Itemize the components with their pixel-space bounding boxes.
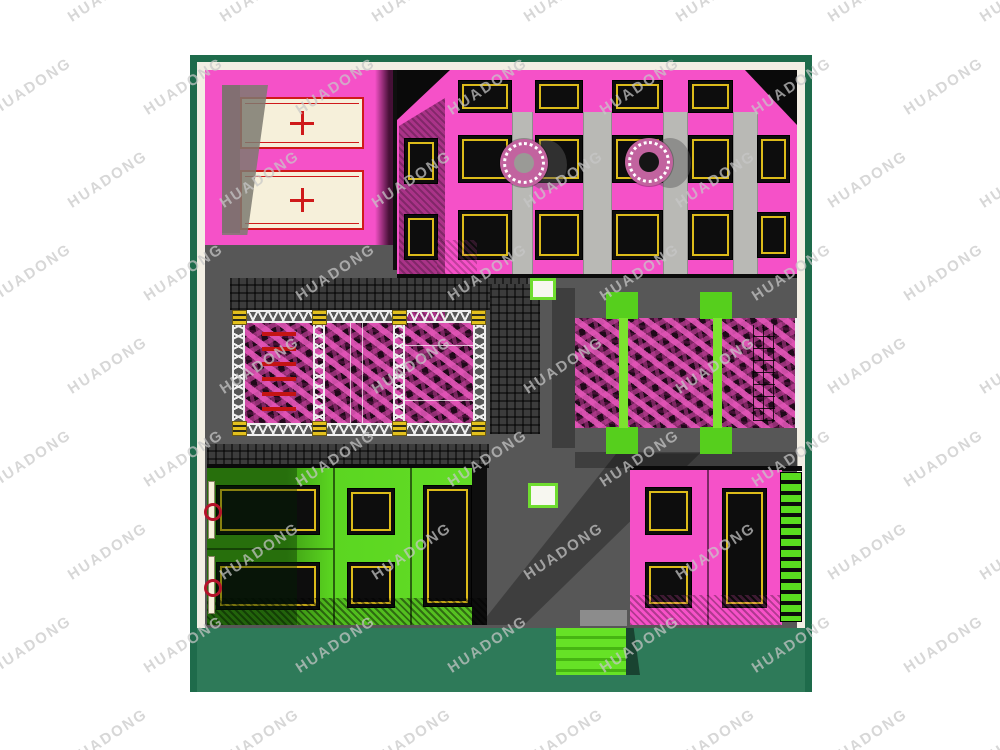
hazard-pad — [392, 421, 407, 436]
trampoline-park-render: HUADONGHUADONGHUADONGHUADONGHUADONGHUADO… — [0, 0, 1000, 750]
trampoline-bed — [404, 138, 438, 184]
zone-edge-shadow — [375, 70, 395, 245]
watermark-text: HUADONG — [673, 705, 759, 750]
zone-left-shade — [207, 468, 297, 625]
trampoline-bed — [535, 80, 583, 113]
donut-ring — [500, 139, 548, 187]
truss-edge-right — [473, 310, 486, 436]
pit-edge-pad — [795, 318, 799, 428]
truss-edge-left — [232, 310, 245, 436]
trampoline-bed — [612, 210, 663, 260]
column-pad — [530, 278, 556, 300]
beam-pad — [606, 292, 638, 319]
watermark-text: HUADONG — [65, 705, 151, 750]
zone-trampoline-pink — [630, 466, 802, 625]
trampoline-bed — [688, 80, 733, 113]
basketball-hoop — [204, 503, 222, 521]
hazard-pad — [312, 421, 327, 436]
airbag-mat — [240, 170, 364, 230]
watermark-text: HUADONG — [825, 519, 911, 583]
hazard-pad — [392, 310, 407, 325]
watermark-text: HUADONG — [0, 612, 75, 676]
watermark-text: HUADONG — [0, 54, 75, 118]
beam-pad — [700, 292, 732, 319]
frame-right — [805, 55, 812, 692]
trampoline-bed — [535, 210, 583, 260]
zone-airbag — [205, 70, 395, 245]
balance-beam — [713, 318, 722, 428]
watermark-text: HUADONG — [65, 147, 151, 211]
walkway-stripe — [663, 112, 688, 278]
watermark-text: HUADONG — [825, 0, 911, 26]
walkway-stripe — [512, 112, 533, 278]
truss-line — [405, 400, 473, 401]
watermark-text: HUADONG — [673, 0, 759, 26]
hazard-pad — [312, 310, 327, 325]
trampoline-bed — [423, 485, 472, 607]
watermark-text: HUADONG — [825, 147, 911, 211]
cross-mark — [290, 188, 314, 212]
truss-post — [313, 310, 325, 436]
truss-edge-top — [232, 310, 486, 323]
truss-edge-bottom — [232, 423, 486, 436]
truss-line — [362, 323, 363, 423]
trampoline-bed — [347, 488, 395, 535]
watermark-text: HUADONG — [65, 0, 151, 26]
trampoline-bed — [458, 80, 512, 113]
watermark-text: HUADONG — [369, 0, 455, 26]
hazard-pad — [471, 421, 486, 436]
watermark-text: HUADONG — [977, 147, 1000, 211]
beam-pad — [606, 427, 638, 454]
watermark-text: HUADONG — [825, 705, 911, 750]
watermark-text: HUADONG — [0, 240, 75, 304]
hazard-pad — [232, 421, 247, 436]
beam-foam-pit — [575, 292, 800, 454]
hazard-pad — [471, 310, 486, 325]
pit-shadow — [552, 288, 575, 448]
watermark-text: HUADONG — [65, 333, 151, 397]
zone-trampoline-green — [207, 464, 487, 625]
watermark-text: HUADONG — [977, 333, 1000, 397]
watermark-text: HUADONG — [901, 612, 987, 676]
trampoline-bed — [404, 214, 438, 260]
donut-ring — [625, 138, 673, 186]
cross-mark — [290, 111, 314, 135]
trampoline-bed — [757, 212, 790, 258]
watermark-text: HUADONG — [977, 519, 1000, 583]
stairs-landing — [580, 610, 627, 626]
truss-post — [393, 310, 405, 436]
park-wall-left — [197, 62, 205, 646]
frame-top — [190, 55, 812, 62]
basketball-hoop — [204, 579, 222, 597]
watermark-text: HUADONG — [521, 705, 607, 750]
trampoline-bed — [645, 487, 692, 535]
watermark-text: HUADONG — [217, 0, 303, 26]
truss-foam-pit — [232, 310, 486, 436]
watermark-text: HUADONG — [0, 426, 75, 490]
park-wall-top — [197, 62, 805, 70]
truss-line — [405, 345, 473, 346]
zone-floor-shade — [630, 595, 782, 625]
watermark-text: HUADONG — [521, 0, 607, 26]
watermark-text: HUADONG — [901, 240, 987, 304]
trampoline-bed — [722, 488, 767, 608]
foam-pit-ladder — [262, 332, 296, 420]
beam-pad — [700, 427, 732, 454]
trampoline-bed — [688, 135, 733, 183]
entrance-stairs — [556, 628, 626, 675]
watermark-text: HUADONG — [901, 426, 987, 490]
watermark-text: HUADONG — [65, 519, 151, 583]
truss-line — [350, 323, 351, 423]
balance-beam — [619, 318, 628, 428]
donut-hole — [514, 153, 534, 173]
watermark-text: HUADONG — [901, 54, 987, 118]
truss-shadow-tower — [490, 284, 540, 434]
watermark-text: HUADONG — [977, 0, 1000, 26]
walkway-stripe — [583, 112, 612, 278]
trampoline-bed — [688, 210, 733, 260]
watermark-text: HUADONG — [825, 333, 911, 397]
climbing-ladder-strip — [780, 472, 802, 622]
watermark-text: HUADONG — [977, 705, 1000, 750]
truss-shadow-band — [230, 278, 528, 310]
watermark-text: HUADONG — [369, 705, 455, 750]
entrance-floor — [197, 628, 805, 692]
pit-ladder-grid — [753, 325, 775, 421]
hazard-pad — [232, 310, 247, 325]
frame-left — [190, 55, 197, 692]
walkway-stripe — [733, 112, 758, 278]
watermark-text: HUADONG — [217, 705, 303, 750]
zone-trampoline-court — [397, 70, 797, 278]
donut-hole — [639, 152, 659, 172]
trampoline-bed — [757, 135, 790, 183]
court-corner-shade — [437, 240, 477, 274]
column-pad — [528, 483, 558, 508]
trampoline-bed — [612, 80, 663, 113]
